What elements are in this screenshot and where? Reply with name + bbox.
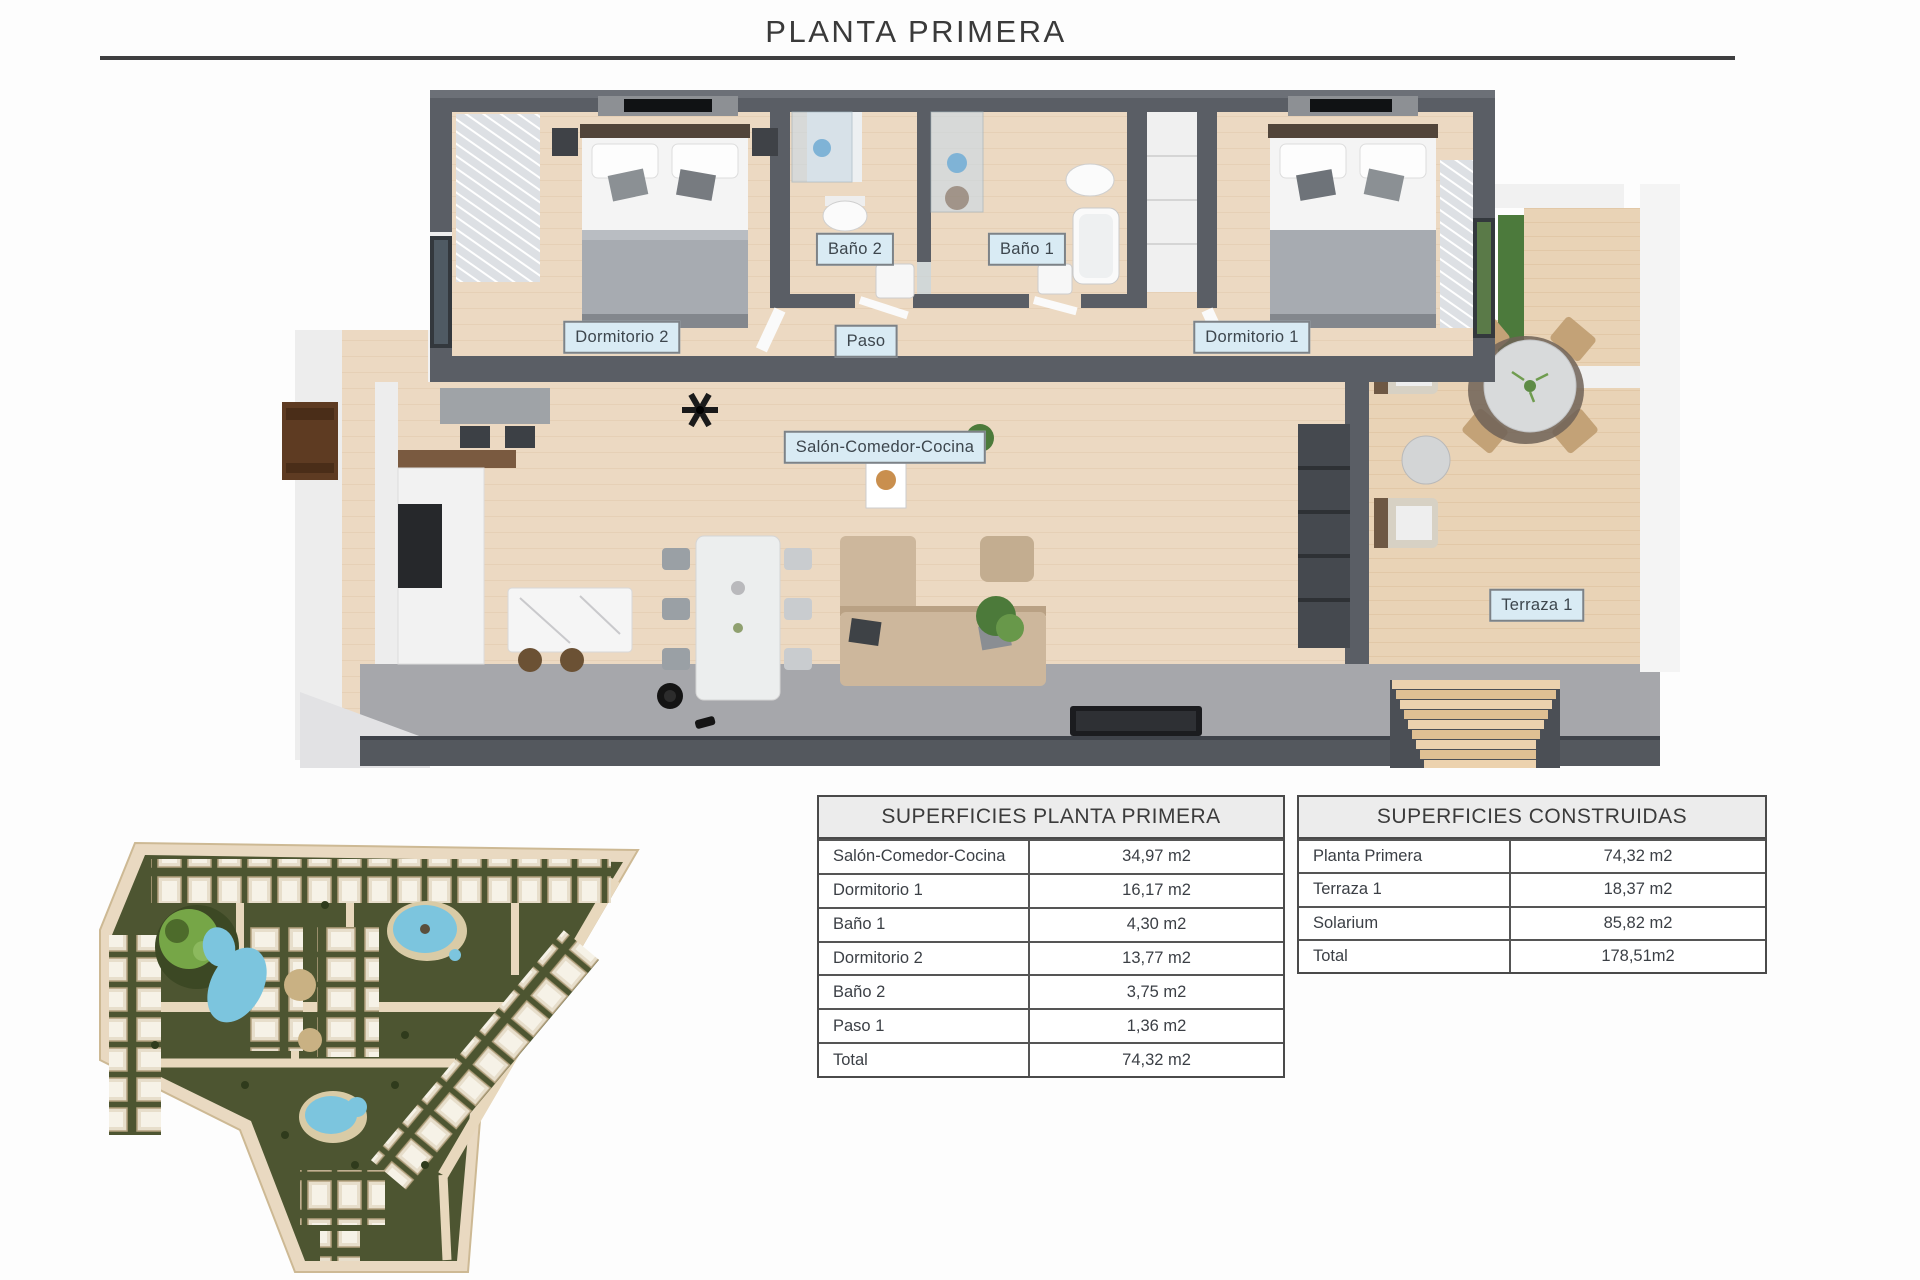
side-table [1402,436,1450,484]
table-row: Baño 1 4,30 m2 [819,907,1283,941]
row-value: 3,75 m2 [1030,976,1283,1008]
table-row: Total 178,51m2 [1299,939,1765,972]
table-title: SUPERFICIES PLANTA PRIMERA [819,797,1283,839]
tv-shelf-unit [1298,424,1350,648]
table-row: Total 74,32 m2 [819,1042,1283,1076]
stairs [1390,680,1560,768]
surface-table-planta-primera: SUPERFICIES PLANTA PRIMERA Salón-Comedor… [817,795,1285,1078]
room-label-terraza1: Terraza 1 [1489,589,1584,622]
row-label: Paso 1 [819,1010,1030,1042]
row-value: 74,32 m2 [1030,1044,1283,1076]
room-label-paso: Paso [835,325,898,358]
row-value: 18,37 m2 [1511,874,1765,905]
room-label-dormitorio2: Dormitorio 2 [563,321,680,354]
fire-pit-tray [1070,706,1202,736]
wardrobe [1147,112,1197,292]
row-label: Planta Primera [1299,841,1511,872]
table-title: SUPERFICIES CONSTRUIDAS [1299,797,1765,839]
table-row: Planta Primera 74,32 m2 [1299,839,1765,872]
room-label-salon: Salón-Comedor-Cocina [784,431,986,464]
row-label: Solarium [1299,908,1511,939]
table-row: Terraza 1 18,37 m2 [1299,872,1765,905]
row-value: 4,30 m2 [1030,909,1283,941]
row-label: Terraza 1 [1299,874,1511,905]
table-row: Dormitorio 1 16,17 m2 [819,873,1283,907]
title-underline [100,56,1735,60]
row-value: 74,32 m2 [1511,841,1765,872]
table-row: Baño 2 3,75 m2 [819,974,1283,1008]
table-row: Salón-Comedor-Cocina 34,97 m2 [819,839,1283,873]
surface-table-construidas: SUPERFICIES CONSTRUIDAS Planta Primera 7… [1297,795,1767,974]
brochure-page: PLANTA PRIMERA [0,0,1920,1280]
outdoor-armchair [1374,498,1438,548]
row-label: Salón-Comedor-Cocina [819,841,1030,873]
row-label: Total [1299,941,1511,972]
table-row: Solarium 85,82 m2 [1299,906,1765,939]
row-value: 85,82 m2 [1511,908,1765,939]
row-value: 16,17 m2 [1030,875,1283,907]
room-label-bano1: Baño 1 [988,233,1066,266]
room-label-dormitorio1: Dormitorio 1 [1193,321,1310,354]
row-label: Baño 1 [819,909,1030,941]
row-value: 1,36 m2 [1030,1010,1283,1042]
row-label: Dormitorio 2 [819,943,1030,975]
row-value: 178,51m2 [1511,941,1765,972]
salon-comedor-cocina-room [375,382,1369,700]
table-row: Dormitorio 2 13,77 m2 [819,941,1283,975]
row-label: Total [819,1044,1030,1076]
page-title: PLANTA PRIMERA [765,14,1066,50]
site-plan [95,835,655,1280]
floor-plan-render [280,68,1700,768]
row-label: Baño 2 [819,976,1030,1008]
row-value: 34,97 m2 [1030,841,1283,873]
row-value: 13,77 m2 [1030,943,1283,975]
row-label: Dormitorio 1 [819,875,1030,907]
table-row: Paso 1 1,36 m2 [819,1008,1283,1042]
wall-art [866,456,906,508]
room-label-bano2: Baño 2 [816,233,894,266]
